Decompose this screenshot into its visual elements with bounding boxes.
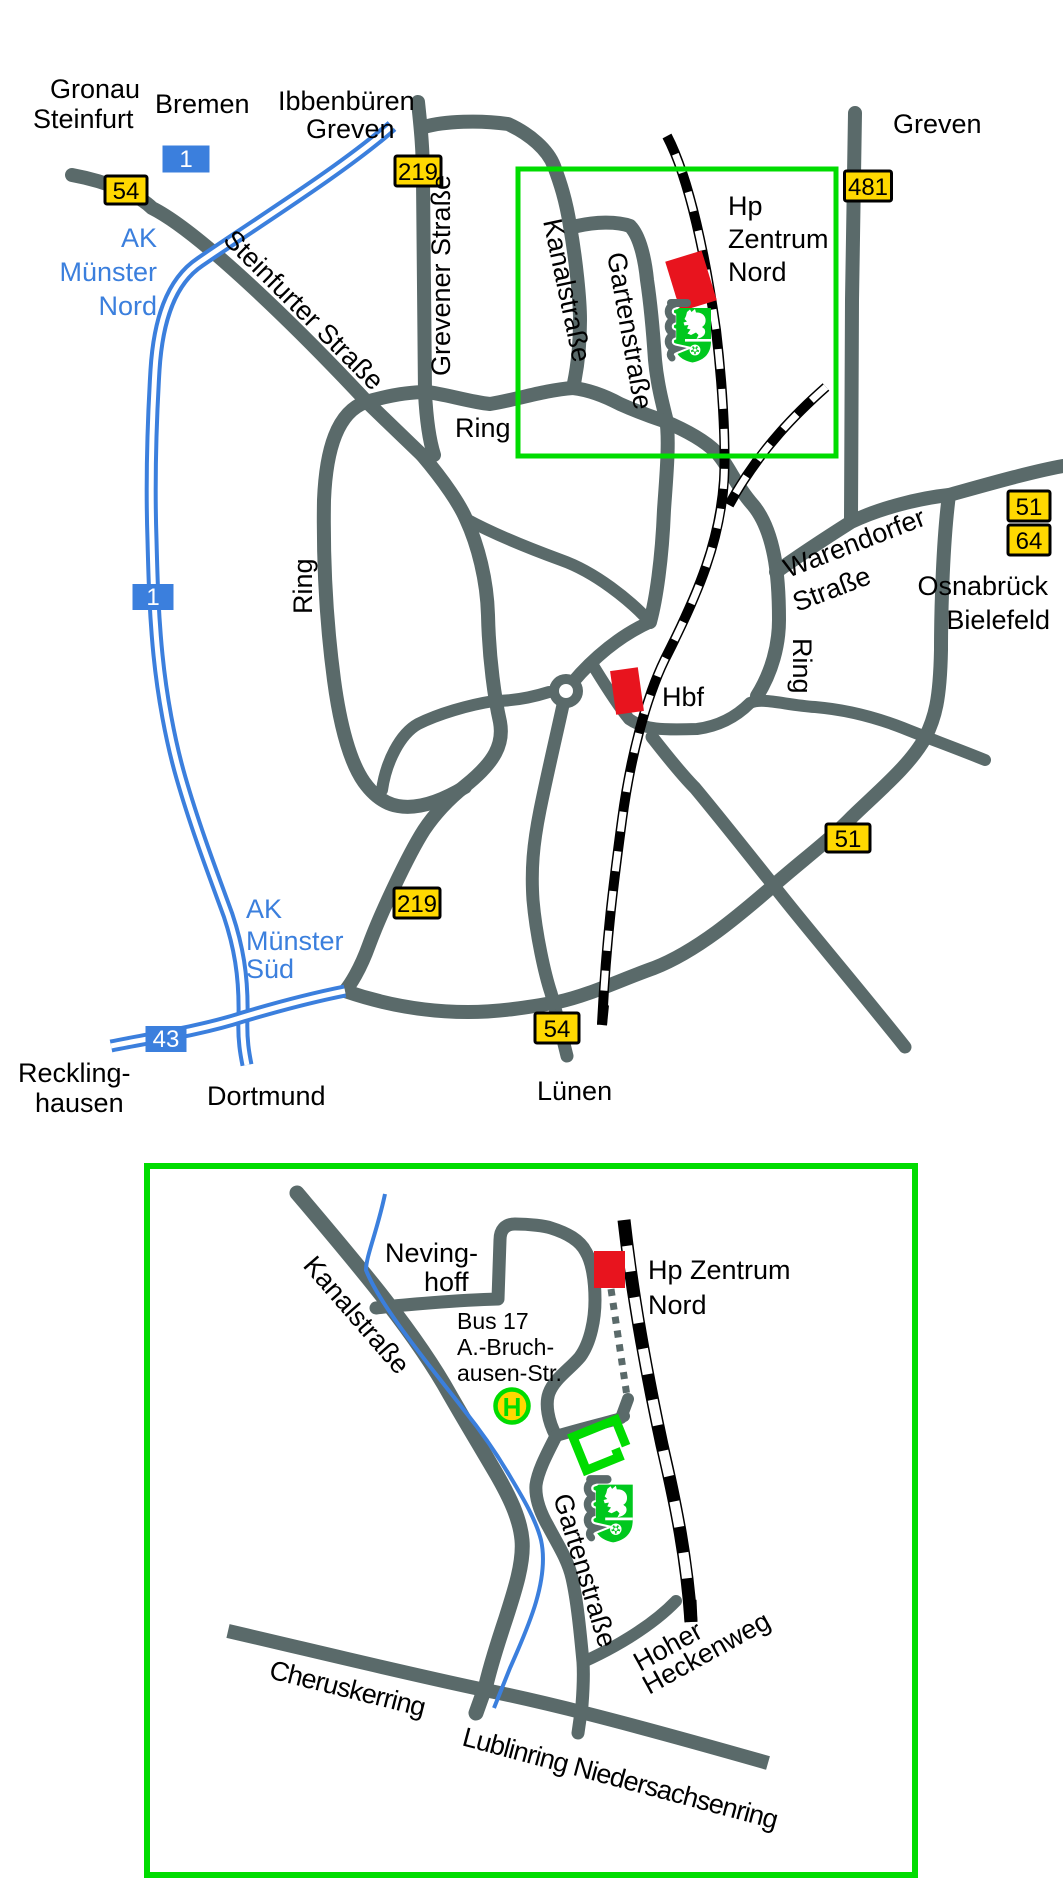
svg-text:H: H <box>503 1392 522 1422</box>
svg-text:Greven: Greven <box>893 109 982 139</box>
svg-text:481: 481 <box>848 174 888 201</box>
svg-text:1: 1 <box>146 584 159 611</box>
svg-text:ausen-Str.: ausen-Str. <box>457 1360 562 1386</box>
svg-text:Bielefeld: Bielefeld <box>946 605 1050 635</box>
svg-text:Nord: Nord <box>98 291 157 321</box>
svg-text:Neving-: Neving- <box>385 1238 478 1268</box>
svg-text:Hp: Hp <box>728 191 763 221</box>
svg-text:Grevener Straße: Grevener Straße <box>426 175 456 376</box>
svg-text:54: 54 <box>113 178 140 205</box>
svg-text:Nord: Nord <box>648 1290 707 1320</box>
svg-text:Steinfurt: Steinfurt <box>33 104 134 134</box>
svg-text:Gronau: Gronau <box>50 74 140 104</box>
svg-text:AK: AK <box>246 894 282 924</box>
svg-text:Zentrum: Zentrum <box>728 224 829 254</box>
svg-text:Süd: Süd <box>246 954 294 984</box>
svg-text:Hp Zentrum: Hp Zentrum <box>648 1255 791 1285</box>
svg-text:1: 1 <box>179 146 192 173</box>
svg-text:219: 219 <box>397 891 437 918</box>
svg-text:Greven: Greven <box>306 114 395 144</box>
svg-text:hausen: hausen <box>35 1088 124 1118</box>
svg-text:Reckling-: Reckling- <box>18 1058 131 1088</box>
svg-text:Hbf: Hbf <box>662 682 705 712</box>
svg-text:AK: AK <box>121 223 157 253</box>
svg-text:Münster: Münster <box>59 257 157 287</box>
svg-text:Osnabrück: Osnabrück <box>917 571 1048 601</box>
svg-text:Bus 17: Bus 17 <box>457 1308 529 1334</box>
svg-text:51: 51 <box>1016 494 1043 521</box>
svg-text:Nord: Nord <box>728 257 787 287</box>
svg-text:Bremen: Bremen <box>155 89 250 119</box>
svg-text:hoff: hoff <box>424 1267 469 1297</box>
svg-text:Lünen: Lünen <box>537 1076 612 1106</box>
svg-text:Ring: Ring <box>288 558 318 614</box>
svg-text:54: 54 <box>544 1016 571 1043</box>
svg-text:43: 43 <box>153 1026 180 1053</box>
svg-text:64: 64 <box>1016 528 1043 555</box>
svg-text:Ring: Ring <box>787 638 817 694</box>
svg-text:A.-Bruch-: A.-Bruch- <box>457 1334 554 1360</box>
svg-text:Ring: Ring <box>455 413 511 443</box>
svg-text:51: 51 <box>835 826 862 853</box>
svg-text:Münster: Münster <box>246 926 344 956</box>
svg-text:Ibbenbüren: Ibbenbüren <box>278 86 415 116</box>
svg-text:Dortmund: Dortmund <box>207 1081 326 1111</box>
